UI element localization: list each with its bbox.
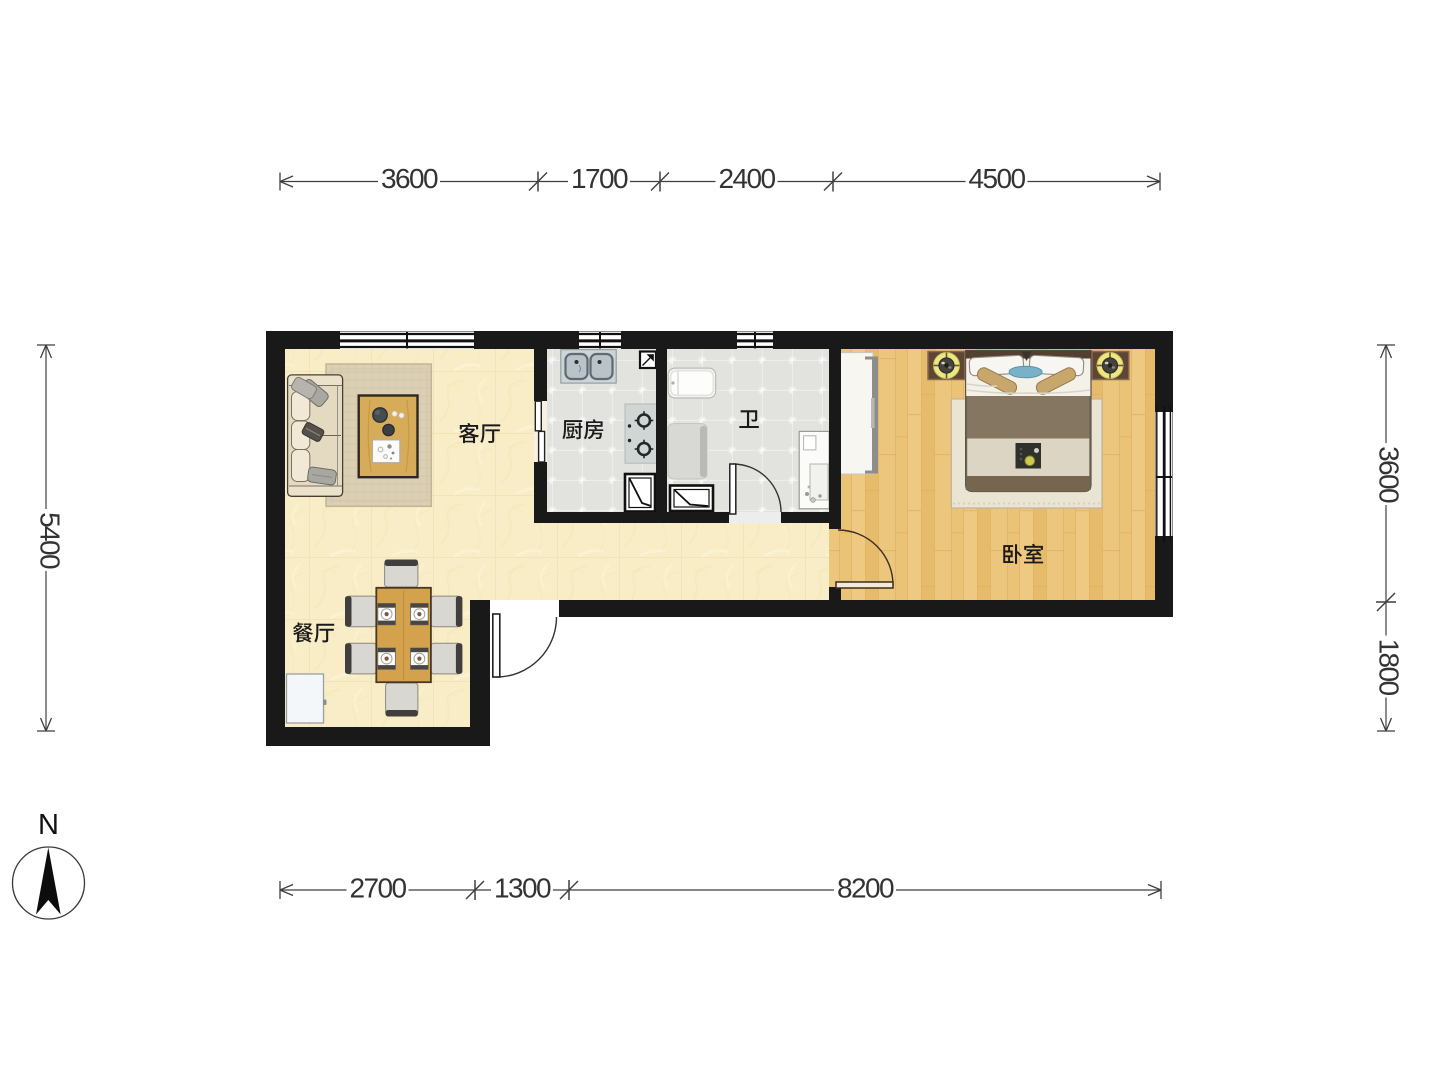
svg-text:1800: 1800 — [1374, 639, 1405, 696]
svg-text:8200: 8200 — [837, 873, 894, 904]
svg-text:2400: 2400 — [719, 163, 776, 194]
svg-text:1700: 1700 — [571, 163, 628, 194]
svg-text:3600: 3600 — [1374, 446, 1405, 503]
svg-text:4500: 4500 — [969, 163, 1026, 194]
svg-text:2700: 2700 — [350, 873, 407, 904]
svg-text:3600: 3600 — [381, 163, 438, 194]
svg-text:N: N — [38, 809, 59, 841]
svg-text:5400: 5400 — [35, 512, 66, 569]
svg-text:1300: 1300 — [494, 873, 551, 904]
